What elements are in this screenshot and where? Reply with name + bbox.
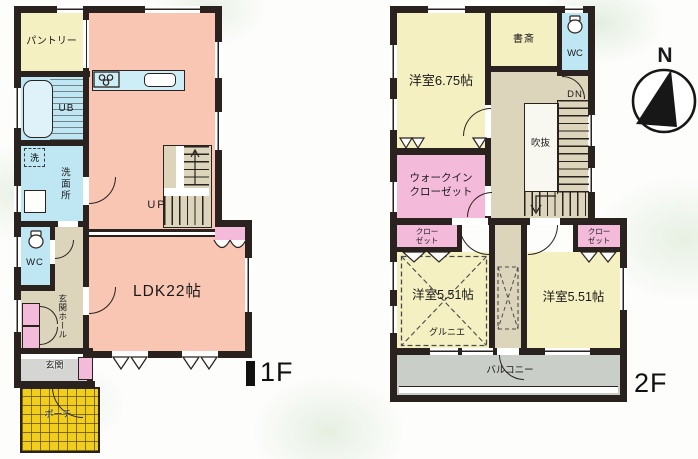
casement-window-icon [182,356,218,371]
window [57,6,83,13]
wic-label-line1: ウォークイン [397,172,485,184]
wall [14,140,89,146]
floor-1-label: 1F [260,357,294,388]
window [245,258,252,312]
kitchen-sink [144,73,176,87]
toilet-icon [564,15,586,34]
wall [620,218,627,402]
window [430,348,458,355]
folding-door-icon [472,137,487,150]
washroom-sink [24,190,46,213]
wall [489,225,495,348]
wall [14,285,55,291]
ldk-label: LDK22帖 [105,283,230,301]
door-arc [459,225,489,255]
wall [390,218,627,225]
window [428,6,465,13]
window [14,88,21,128]
stairs-down-label: DN [558,90,592,101]
bath-label: UB [50,103,83,115]
floor-1-tag-bar [246,361,255,386]
window [390,45,397,78]
window [390,306,397,333]
stove-icon [93,71,120,88]
closet-left-line2: ゼット [397,236,457,245]
partition-line [89,235,215,238]
void-label: 吹抜 [524,139,557,150]
stairs-up-label: UP [142,199,172,212]
window [14,300,21,332]
washroom-label: 洗面所 [58,158,69,210]
door-gap [452,218,488,225]
partition-line [89,229,215,232]
stairs-down-arrow-icon [526,192,560,218]
wc-2f-label: WC [562,49,588,60]
stairs-up-arrow-icon [190,147,200,187]
window [145,6,200,13]
bedroom-551-right-label: 洋室5.51帖 [527,290,620,304]
balcony-edge [399,386,618,393]
closet-right-label: クローゼット [578,227,620,245]
window [390,262,397,290]
door-gap [530,218,560,225]
toilet-icon [25,230,47,249]
wall [557,6,562,72]
study-label: 書斎 [491,34,557,46]
bathtub [23,80,53,138]
washing-machine-label: 洗 [30,151,39,164]
shoe-cabinet [22,326,40,349]
washing-machine-icon: 洗 [24,148,45,167]
pantry-label: パントリー [20,36,83,48]
window [215,42,222,78]
wall [485,66,557,72]
window [620,268,627,310]
wall [14,71,90,77]
closet-left-label: クローゼット [397,227,457,245]
door-gap [58,221,78,227]
sliding-door-line [86,20,87,68]
stairs-stringer [176,146,184,194]
closet-left-line1: クロー [397,227,457,236]
floor-2-label: 2F [634,368,668,399]
window [390,99,397,130]
wic-label-line2: クローゼット [397,186,485,198]
entrance-label: 玄関 [20,360,89,370]
folding-door-icon [399,137,425,150]
grenier-ladder-dashed [497,266,519,330]
balcony-label: バルコニー [455,366,565,377]
window [588,115,595,146]
stairs-stringer [164,188,209,196]
compass-icon [628,66,698,136]
compass-north-label: N [650,44,680,68]
bedroom-551-left-label: 洋室5.51帖 [397,288,489,302]
shoe-cabinet [22,303,40,326]
closet-right-line1: クロー [578,227,620,236]
door-gap [497,348,519,355]
window [390,182,397,212]
closet-door-icon [402,251,452,264]
bedroom-675-label: 洋室6.75帖 [397,74,485,89]
window [215,112,222,150]
window [545,348,590,355]
door-arc [528,225,558,255]
wall [521,225,527,348]
floorplan-canvas: 洗 パントリー UB 洗面所 WC 玄関ホール 玄関 ポーチ UP LDK22帖… [0,0,698,459]
closet-door-icon [580,251,618,264]
stairs-2f-treads [557,100,589,194]
window [565,6,583,13]
wall [83,351,252,358]
wc-1f-label: WC [20,258,50,269]
wall [390,395,627,402]
grenier-label: グルニエ [412,327,482,337]
porch-label: ポーチ [20,409,96,419]
window [14,186,21,212]
window [588,168,595,192]
window [462,348,493,355]
entrance-hall-label: 玄関ホール [57,284,67,348]
casement-window-icon [112,356,148,371]
closet-right-line2: ゼット [578,236,620,245]
closet-door-arcs-icon [213,239,247,254]
